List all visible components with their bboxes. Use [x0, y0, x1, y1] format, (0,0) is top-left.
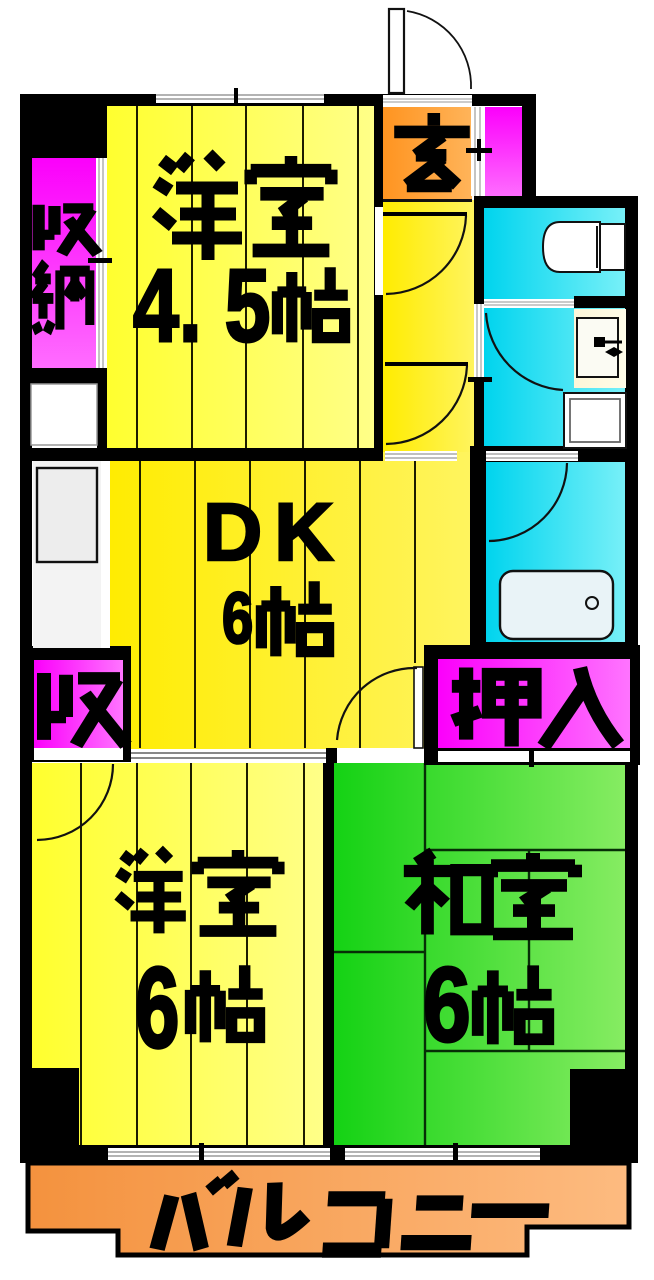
svg-text:6: 6	[222, 578, 253, 658]
svg-text:6: 6	[135, 944, 179, 1071]
svg-text:DK: DK	[203, 487, 345, 578]
svg-text:6: 6	[423, 946, 471, 1064]
svg-text:4. 5: 4. 5	[133, 248, 270, 363]
